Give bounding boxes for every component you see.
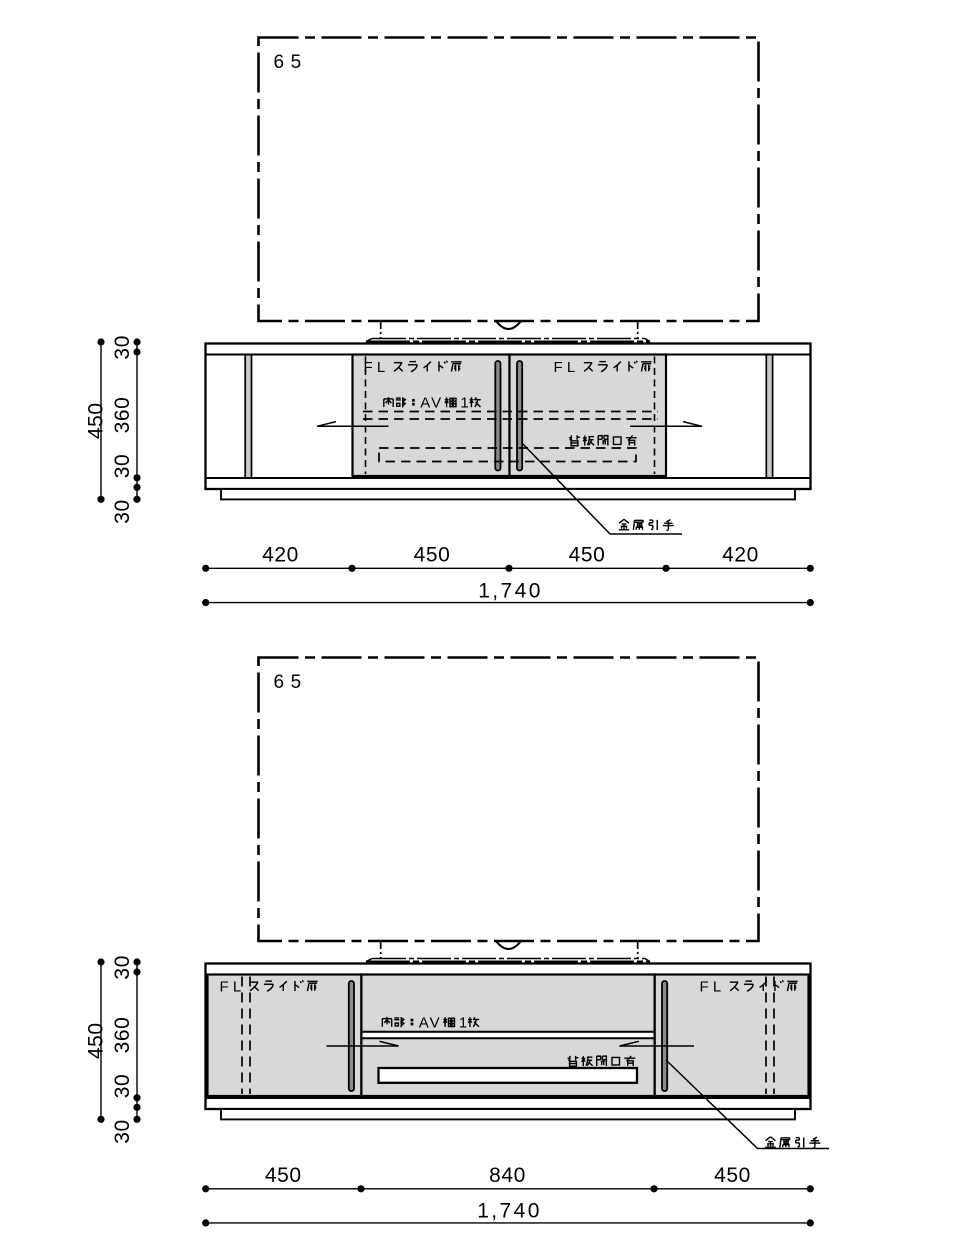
svg-text:30: 30 — [111, 1119, 134, 1144]
svg-text:1,740: 1,740 — [477, 1200, 542, 1223]
svg-text:AV: AV — [420, 395, 443, 412]
svg-text:30: 30 — [111, 955, 134, 980]
svg-text:840: 840 — [489, 1164, 526, 1187]
svg-text:30: 30 — [111, 335, 134, 360]
svg-text:FL: FL — [364, 359, 390, 376]
svg-text:360: 360 — [111, 397, 134, 434]
svg-text:1,740: 1,740 — [478, 579, 543, 602]
svg-text:65: 65 — [274, 672, 308, 693]
svg-text:30: 30 — [111, 1074, 134, 1099]
svg-text:450: 450 — [414, 544, 451, 567]
svg-text:360: 360 — [111, 1017, 134, 1054]
svg-text:1: 1 — [459, 1014, 467, 1031]
svg-text:450: 450 — [569, 544, 606, 567]
svg-text:30: 30 — [111, 454, 134, 479]
svg-text:FL: FL — [700, 979, 726, 996]
svg-text:AV: AV — [419, 1014, 442, 1031]
svg-text:420: 420 — [722, 544, 759, 567]
svg-text:1: 1 — [460, 395, 468, 412]
svg-text:450: 450 — [714, 1164, 751, 1187]
svg-text:FL: FL — [220, 979, 246, 996]
svg-text:30: 30 — [111, 499, 134, 524]
svg-text:420: 420 — [262, 544, 299, 567]
svg-text:450: 450 — [85, 402, 108, 439]
svg-text:450: 450 — [85, 1022, 108, 1059]
svg-text:FL: FL — [554, 359, 580, 376]
svg-text:65: 65 — [274, 52, 308, 73]
svg-text:450: 450 — [265, 1164, 302, 1187]
